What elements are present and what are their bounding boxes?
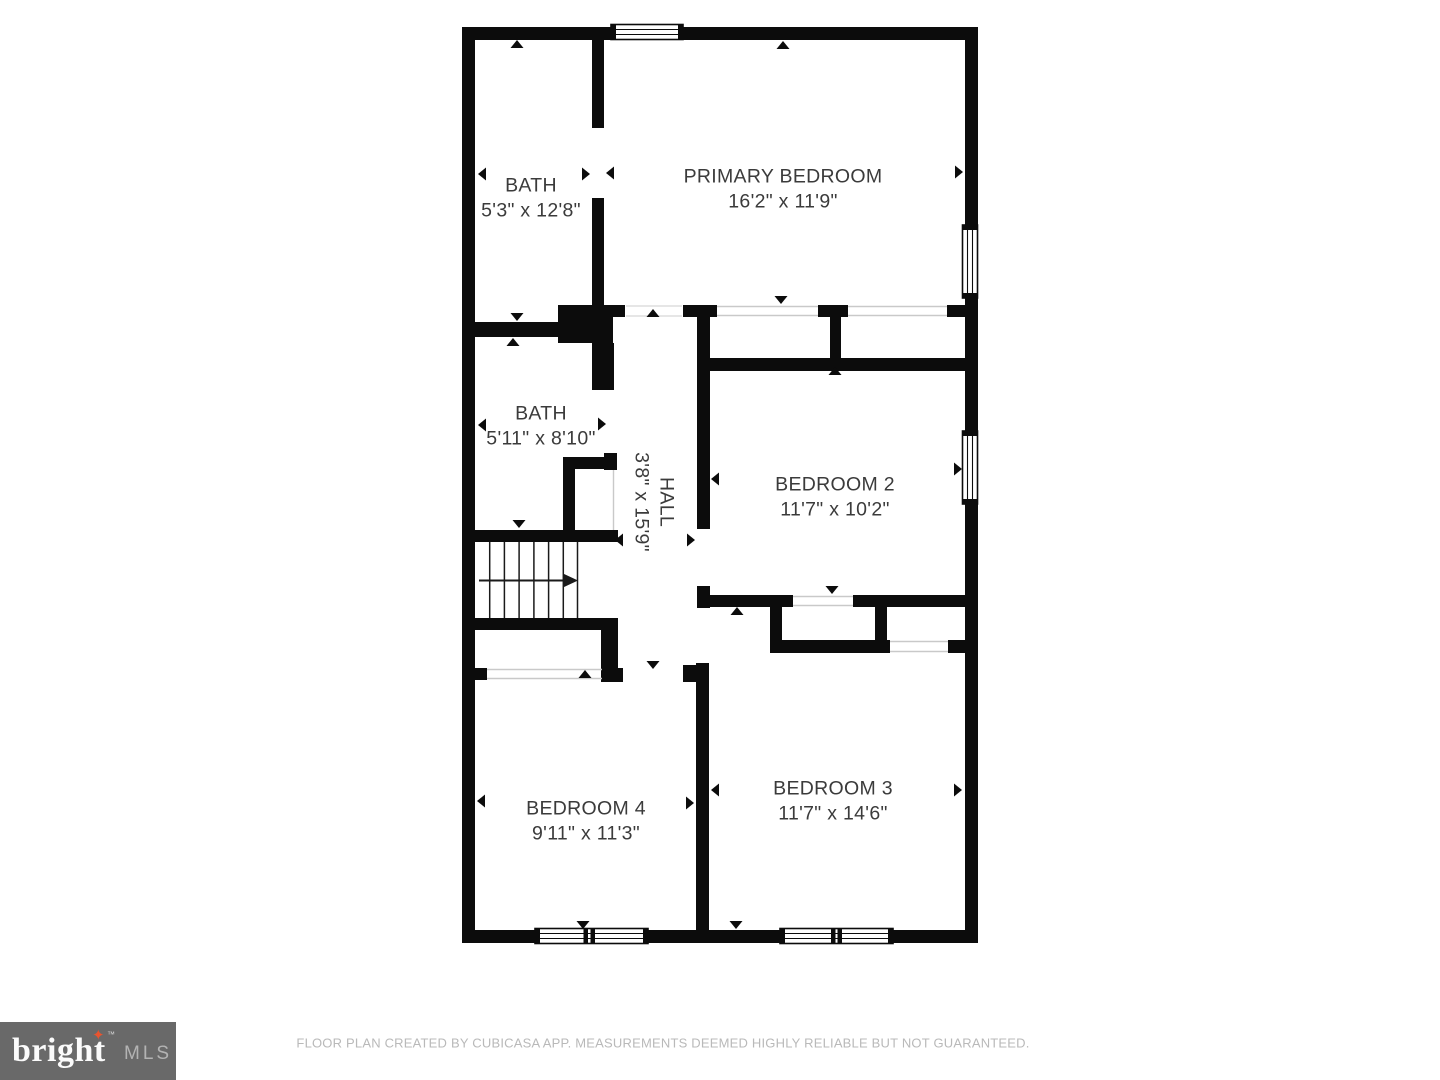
room-dimensions: 16'2" x 11'9" <box>684 189 883 214</box>
wall <box>462 668 487 680</box>
stairs <box>479 542 578 618</box>
trademark-symbol: ™ <box>107 1031 115 1039</box>
wall <box>462 530 618 542</box>
wall <box>462 618 615 630</box>
room-dimensions: 5'3" x 12'8" <box>481 198 581 223</box>
wall <box>462 27 475 943</box>
wall <box>947 305 965 317</box>
wall <box>462 27 978 40</box>
wall <box>475 322 563 337</box>
window-bottom-bedroom4 <box>535 929 648 944</box>
floor-plan-page: BATH 5'3" x 12'8" PRIMARY BEDROOM 16'2" … <box>0 0 1440 1080</box>
room-dimensions: 3'8" x 15'9" <box>630 452 655 552</box>
disclaimer-text: FLOOR PLAN CREATED BY CUBICASA APP. MEAS… <box>296 1036 1029 1051</box>
wall <box>948 640 965 653</box>
window-bottom-bedroom3 <box>780 929 893 944</box>
wall <box>697 316 710 529</box>
wall <box>853 595 965 607</box>
wall <box>696 663 709 943</box>
wall <box>563 457 575 542</box>
logo-mls-text: MLS <box>124 1044 172 1063</box>
room-label-bedroom-4: BEDROOM 4 9'11" x 11'3" <box>526 797 646 846</box>
room-dimensions: 11'7" x 10'2" <box>775 497 895 522</box>
wall <box>592 40 604 128</box>
wall <box>592 343 614 390</box>
room-name: BEDROOM 4 <box>526 797 646 822</box>
room-label-hall: HALL 3'8" x 15'9" <box>630 452 679 552</box>
room-dimensions: 9'11" x 11'3" <box>526 821 646 846</box>
room-label-bedroom-3: BEDROOM 3 11'7" x 14'6" <box>773 777 893 826</box>
room-name: PRIMARY BEDROOM <box>684 165 883 190</box>
wall <box>592 198 604 310</box>
room-name: BATH <box>486 402 595 427</box>
room-name: BEDROOM 3 <box>773 777 893 802</box>
room-name: HALL <box>654 452 679 552</box>
wall <box>602 668 623 682</box>
window-right-bedroom2 <box>963 431 978 504</box>
wall <box>697 358 965 371</box>
bright-mls-logo: bright ✦ ™ MLS <box>0 1022 176 1080</box>
room-label-bedroom-2: BEDROOM 2 11'7" x 10'2" <box>775 473 895 522</box>
window-right-primary <box>963 225 978 298</box>
room-label-bath-upper: BATH 5'3" x 12'8" <box>481 174 581 223</box>
room-label-primary-bedroom: PRIMARY BEDROOM 16'2" x 11'9" <box>684 165 883 214</box>
star-icon: ✦ <box>92 1028 105 1043</box>
room-dimensions: 11'7" x 14'6" <box>773 801 893 826</box>
window-top <box>611 25 683 40</box>
room-name: BATH <box>481 174 581 199</box>
wall <box>683 305 717 317</box>
room-name: BEDROOM 2 <box>775 473 895 498</box>
stair-direction-arrow <box>563 574 578 588</box>
wall <box>558 305 625 317</box>
wall <box>770 640 890 653</box>
wall <box>830 317 841 362</box>
wall <box>818 305 848 317</box>
room-dimensions: 5'11" x 8'10" <box>486 426 595 451</box>
floor-plan-drawing <box>0 0 1440 1080</box>
room-label-bath-lower: BATH 5'11" x 8'10" <box>486 402 595 451</box>
